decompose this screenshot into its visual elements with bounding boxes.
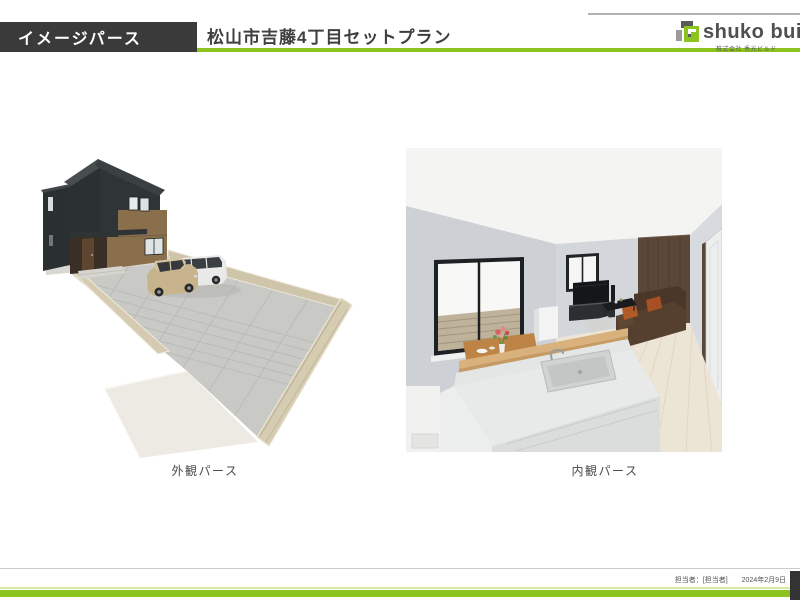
company-logo: shuko build 株式会社 秀光ビルド (676, 20, 800, 50)
cars (147, 255, 241, 298)
interior-figure (406, 148, 722, 452)
footer-green-light-rule (0, 587, 800, 589)
logo-brand-text: shuko build (703, 21, 800, 44)
footer-corner-block (790, 571, 800, 600)
exterior-figure (10, 140, 390, 460)
footer-green-bar (0, 590, 800, 597)
exterior-caption: 外観パース (120, 462, 290, 478)
white-cabinet (534, 306, 558, 344)
exterior-render-image (10, 140, 390, 460)
left-lower-wall (406, 386, 440, 452)
house (41, 159, 170, 279)
interior-render-image (406, 148, 722, 452)
footer-staff-text: 担当者：[担当者] (675, 575, 728, 585)
logo-icon (676, 21, 700, 48)
footer-date-text: 2024年2月9日 (742, 575, 786, 585)
interior-caption: 内観パース (520, 462, 690, 478)
footer-meta: 担当者：[担当者] 2024年2月9日 (675, 575, 786, 585)
plan-title: 松山市吉藤4丁目セットプラン (207, 23, 451, 48)
logo-company-name: 株式会社 秀光ビルド (716, 44, 800, 53)
section-tag: イメージパース (0, 22, 197, 52)
slide: イメージパース 松山市吉藤4丁目セットプラン shuko build 株式会社 … (0, 0, 800, 600)
logo-top-rule (588, 13, 800, 15)
footer-divider (0, 568, 800, 569)
section-tag-label: イメージパース (18, 25, 142, 49)
